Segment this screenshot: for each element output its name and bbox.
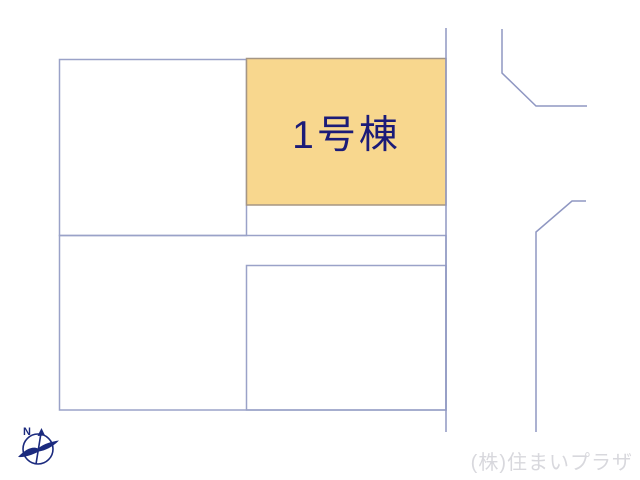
compass-north-label: N [23, 426, 31, 438]
compass-icon: N [13, 419, 65, 471]
lot-outline-top-left [60, 60, 247, 236]
building-lot-1 [247, 59, 447, 206]
compass-needle-head [38, 428, 46, 436]
lot-outline-bottom [60, 236, 447, 411]
company-watermark: (株)住まいプラザ [471, 446, 633, 475]
road-edge-lower-right [536, 201, 586, 432]
site-plan-drawing [0, 0, 640, 480]
lot-outline-bottom-right [247, 266, 447, 411]
site-plan: 1号棟 N (株)住まいプラザ [0, 0, 640, 480]
road-edge-upper-right [502, 29, 587, 106]
